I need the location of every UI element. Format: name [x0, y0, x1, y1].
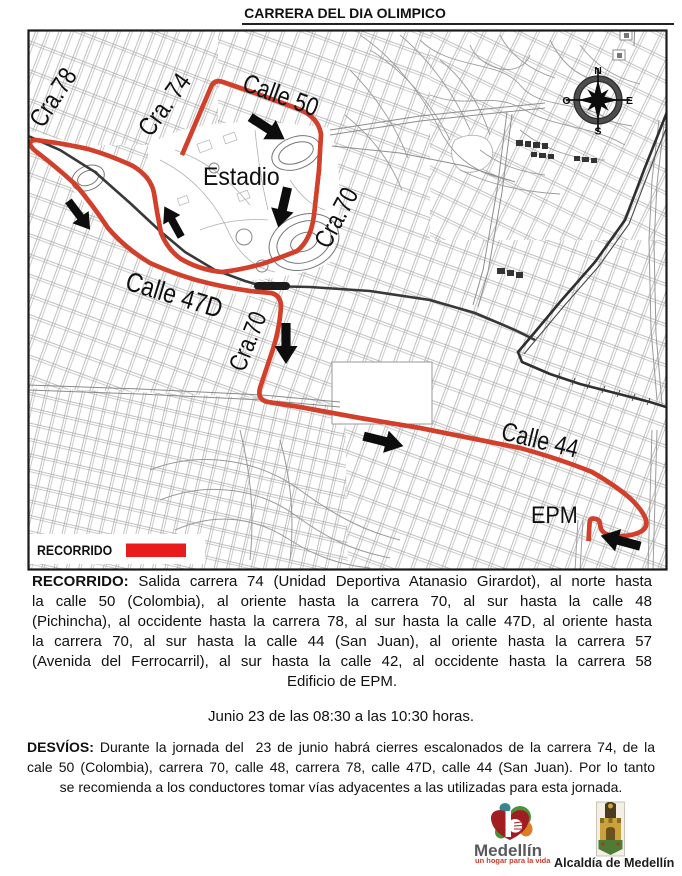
svg-text:Alcaldía de Medellín: Alcaldía de Medellín — [554, 856, 674, 870]
svg-text:E: E — [626, 95, 633, 107]
svg-text:RECORRIDO: RECORRIDO — [37, 542, 112, 558]
svg-text:un hogar para la vida: un hogar para la vida — [475, 856, 551, 865]
svg-text:N: N — [594, 65, 602, 77]
svg-text:EPM: EPM — [531, 501, 578, 528]
svg-text:O: O — [562, 95, 570, 107]
svg-text:S: S — [594, 126, 601, 138]
svg-text:Estadio: Estadio — [203, 163, 280, 191]
